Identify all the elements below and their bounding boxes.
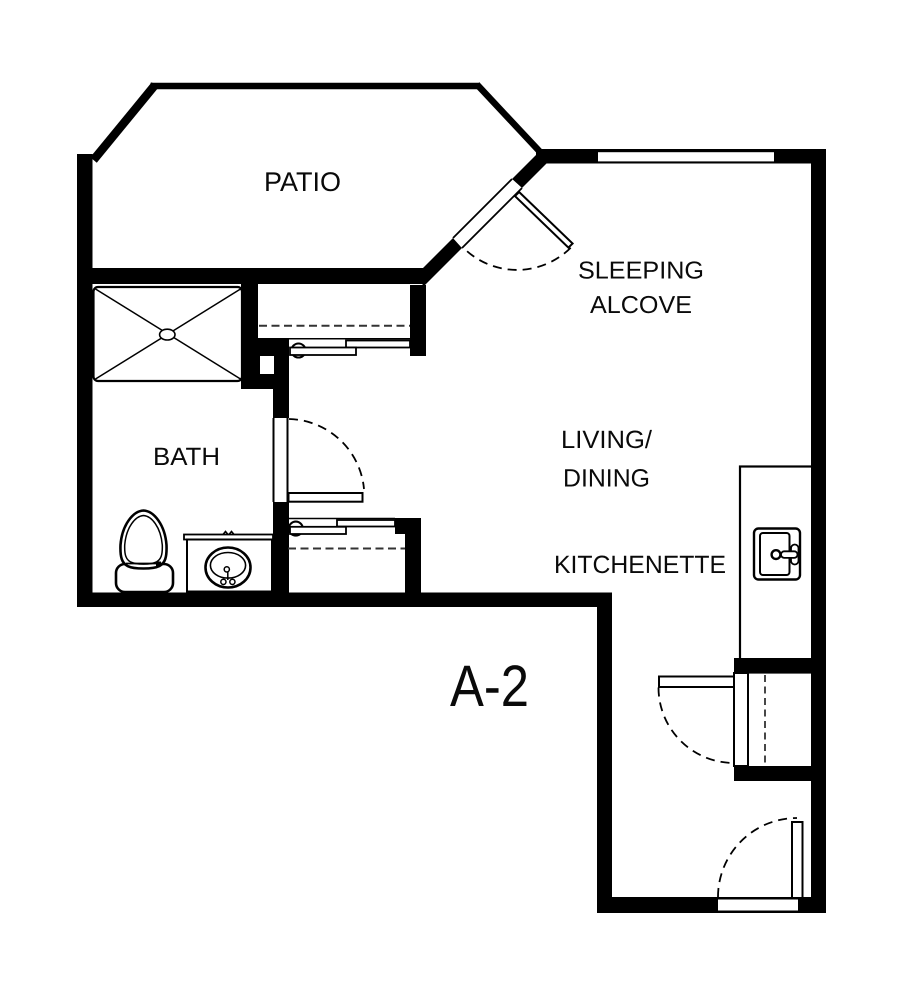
svg-text:LIVING/: LIVING/ <box>561 426 652 454</box>
svg-text:ALCOVE: ALCOVE <box>590 292 692 319</box>
svg-text:BATH: BATH <box>153 443 220 471</box>
svg-text:PATIO: PATIO <box>264 167 341 197</box>
svg-text:KITCHENETTE: KITCHENETTE <box>554 551 726 579</box>
svg-text:SLEEPING: SLEEPING <box>578 258 704 285</box>
svg-text:DINING: DINING <box>563 465 650 493</box>
svg-text:A-2: A-2 <box>450 654 529 719</box>
